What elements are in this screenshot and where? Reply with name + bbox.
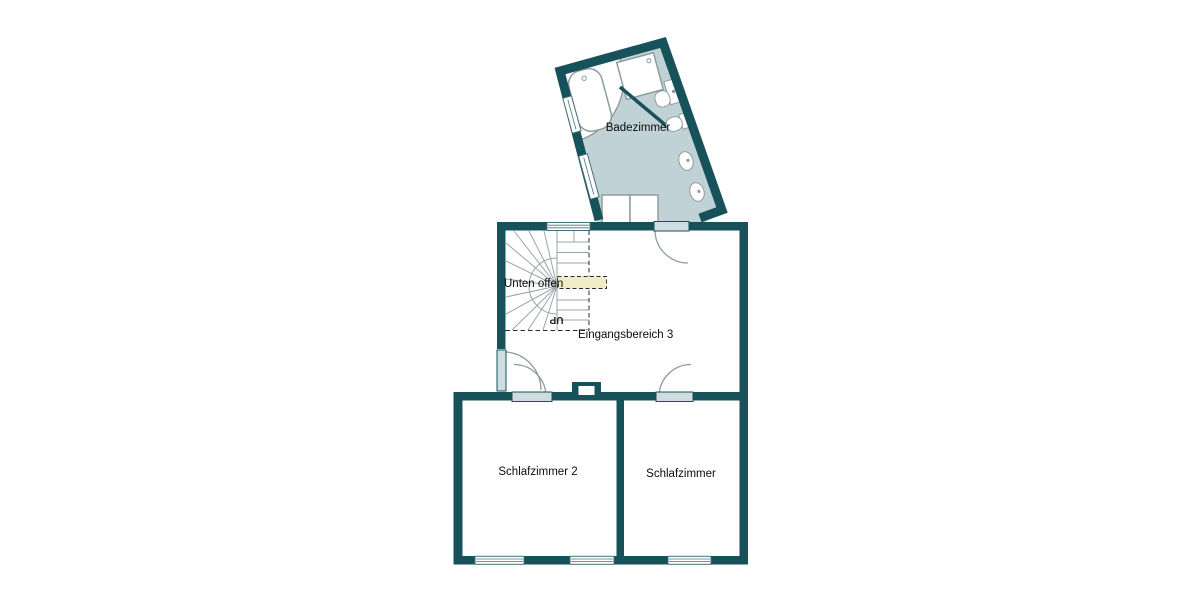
chimney-shaft-inner (579, 386, 595, 395)
bedroom2-top-wall-left (454, 392, 513, 401)
entrance-top-window-frame (547, 223, 590, 231)
room-label-badezimmer: Badezimmer (606, 122, 671, 134)
entrance-top-wall-right (689, 222, 748, 231)
bathroom-door-swing-arc (655, 231, 688, 263)
bedrooms-top-wall-middle (552, 392, 656, 401)
entry-door-swing-arc (506, 352, 541, 390)
bedroom-right-wall (740, 401, 749, 557)
bedroom2-window-1-frame (475, 556, 524, 564)
bathtub-drain-dot (581, 76, 586, 81)
bedroom-top-wall-right (693, 392, 748, 401)
stair-open-below-label: Unten offen (504, 278, 563, 290)
entry-door-panel (497, 350, 506, 391)
bedroom-door-panel (656, 392, 693, 402)
bedroom2-window-2 (570, 556, 614, 564)
chimney-shaft (572, 382, 601, 401)
room-label-schlafzimmer-2: Schlafzimmer 2 (498, 466, 577, 478)
room-label-schlafzimmer: Schlafzimmer (646, 468, 716, 480)
bedroom2-door-panel (512, 392, 552, 402)
entrance-top-window (547, 223, 590, 231)
bathroom-cabinet-1 (602, 195, 630, 223)
bedroom-window-1-frame (668, 556, 711, 564)
floor-plan-page: UP (0, 0, 1200, 600)
stair-open-below-band (558, 277, 607, 289)
floor-plan-drawing: UP (0, 0, 1200, 600)
room-label-eingangsbereich: Eingangsbereich 3 (578, 329, 673, 341)
bedroom-window-1 (668, 556, 711, 564)
stair-up-label: UP (549, 314, 563, 325)
bathroom-cabinet-2 (630, 195, 658, 223)
shower-drain-dot (646, 58, 651, 63)
bedroom2-window-2-frame (570, 556, 614, 564)
bathroom-door-panel (654, 222, 689, 232)
bedrooms-divider-wall (617, 401, 625, 557)
entrance-right-wall (740, 222, 749, 401)
bedroom2-left-wall (454, 401, 463, 557)
bedroom2-window-1 (475, 556, 524, 564)
